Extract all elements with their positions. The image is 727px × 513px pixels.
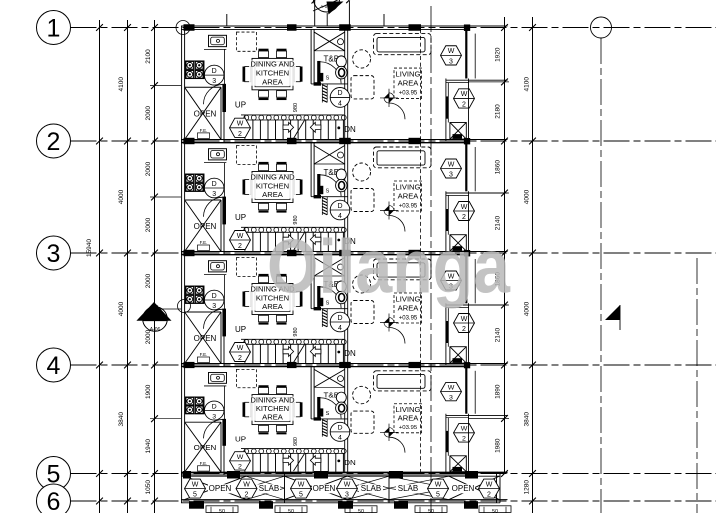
svg-text:3: 3	[47, 240, 61, 268]
svg-text:5: 5	[436, 492, 440, 499]
svg-text:2000: 2000	[145, 217, 152, 232]
svg-text:1: 1	[47, 14, 61, 42]
svg-text:2140: 2140	[495, 327, 502, 342]
svg-text:W: W	[486, 481, 493, 488]
svg-text:50: 50	[492, 509, 498, 513]
svg-text:W: W	[298, 481, 305, 488]
svg-text:W: W	[192, 481, 199, 488]
svg-text:2000: 2000	[145, 273, 152, 288]
svg-text:A-06: A-06	[150, 327, 161, 333]
svg-text:50: 50	[428, 509, 434, 513]
svg-text:6: 6	[47, 488, 61, 513]
svg-text:1900: 1900	[145, 384, 152, 399]
svg-text:OPEN: OPEN	[209, 484, 232, 493]
svg-text:2: 2	[245, 492, 249, 499]
svg-text:1050: 1050	[145, 480, 152, 495]
svg-text:15940: 15940	[86, 239, 93, 257]
svg-text:W: W	[435, 481, 442, 488]
svg-text:3: 3	[345, 492, 349, 499]
svg-text:1940: 1940	[145, 439, 152, 454]
svg-text:1860: 1860	[495, 160, 502, 175]
svg-text:Oilanga: Oilanga	[267, 225, 511, 310]
svg-text:2180: 2180	[495, 104, 502, 119]
svg-text:W: W	[344, 481, 351, 488]
svg-text:OPEN: OPEN	[452, 484, 475, 493]
svg-text:5: 5	[299, 492, 303, 499]
svg-text:A-06: A-06	[320, 4, 330, 9]
svg-text:50: 50	[288, 509, 294, 513]
svg-text:1980: 1980	[495, 438, 502, 453]
svg-text:SLAB: SLAB	[398, 484, 418, 493]
svg-text:4000: 4000	[118, 301, 125, 316]
svg-text:2: 2	[487, 492, 491, 499]
svg-text:50: 50	[358, 509, 364, 513]
svg-text:4000: 4000	[118, 189, 125, 204]
svg-text:4100: 4100	[118, 77, 125, 92]
svg-text:2100: 2100	[145, 49, 152, 64]
svg-text:W: W	[243, 481, 250, 488]
svg-text:3840: 3840	[524, 412, 531, 427]
svg-text:2000: 2000	[145, 106, 152, 121]
svg-text:1280: 1280	[524, 480, 531, 495]
svg-text:2: 2	[47, 128, 61, 156]
svg-text:50: 50	[219, 509, 225, 513]
svg-text:SLAB: SLAB	[259, 484, 279, 493]
svg-text:4000: 4000	[524, 189, 531, 204]
svg-text:4: 4	[47, 352, 61, 380]
svg-text:OPEN: OPEN	[313, 484, 336, 493]
svg-text:3840: 3840	[118, 412, 125, 427]
svg-text:4000: 4000	[524, 301, 531, 316]
svg-text:1890: 1890	[495, 384, 502, 399]
svg-text:5: 5	[193, 492, 197, 499]
svg-text:4100: 4100	[524, 77, 531, 92]
svg-text:1920: 1920	[495, 47, 502, 62]
svg-text:2000: 2000	[145, 161, 152, 176]
svg-text:SLAB: SLAB	[361, 484, 381, 493]
